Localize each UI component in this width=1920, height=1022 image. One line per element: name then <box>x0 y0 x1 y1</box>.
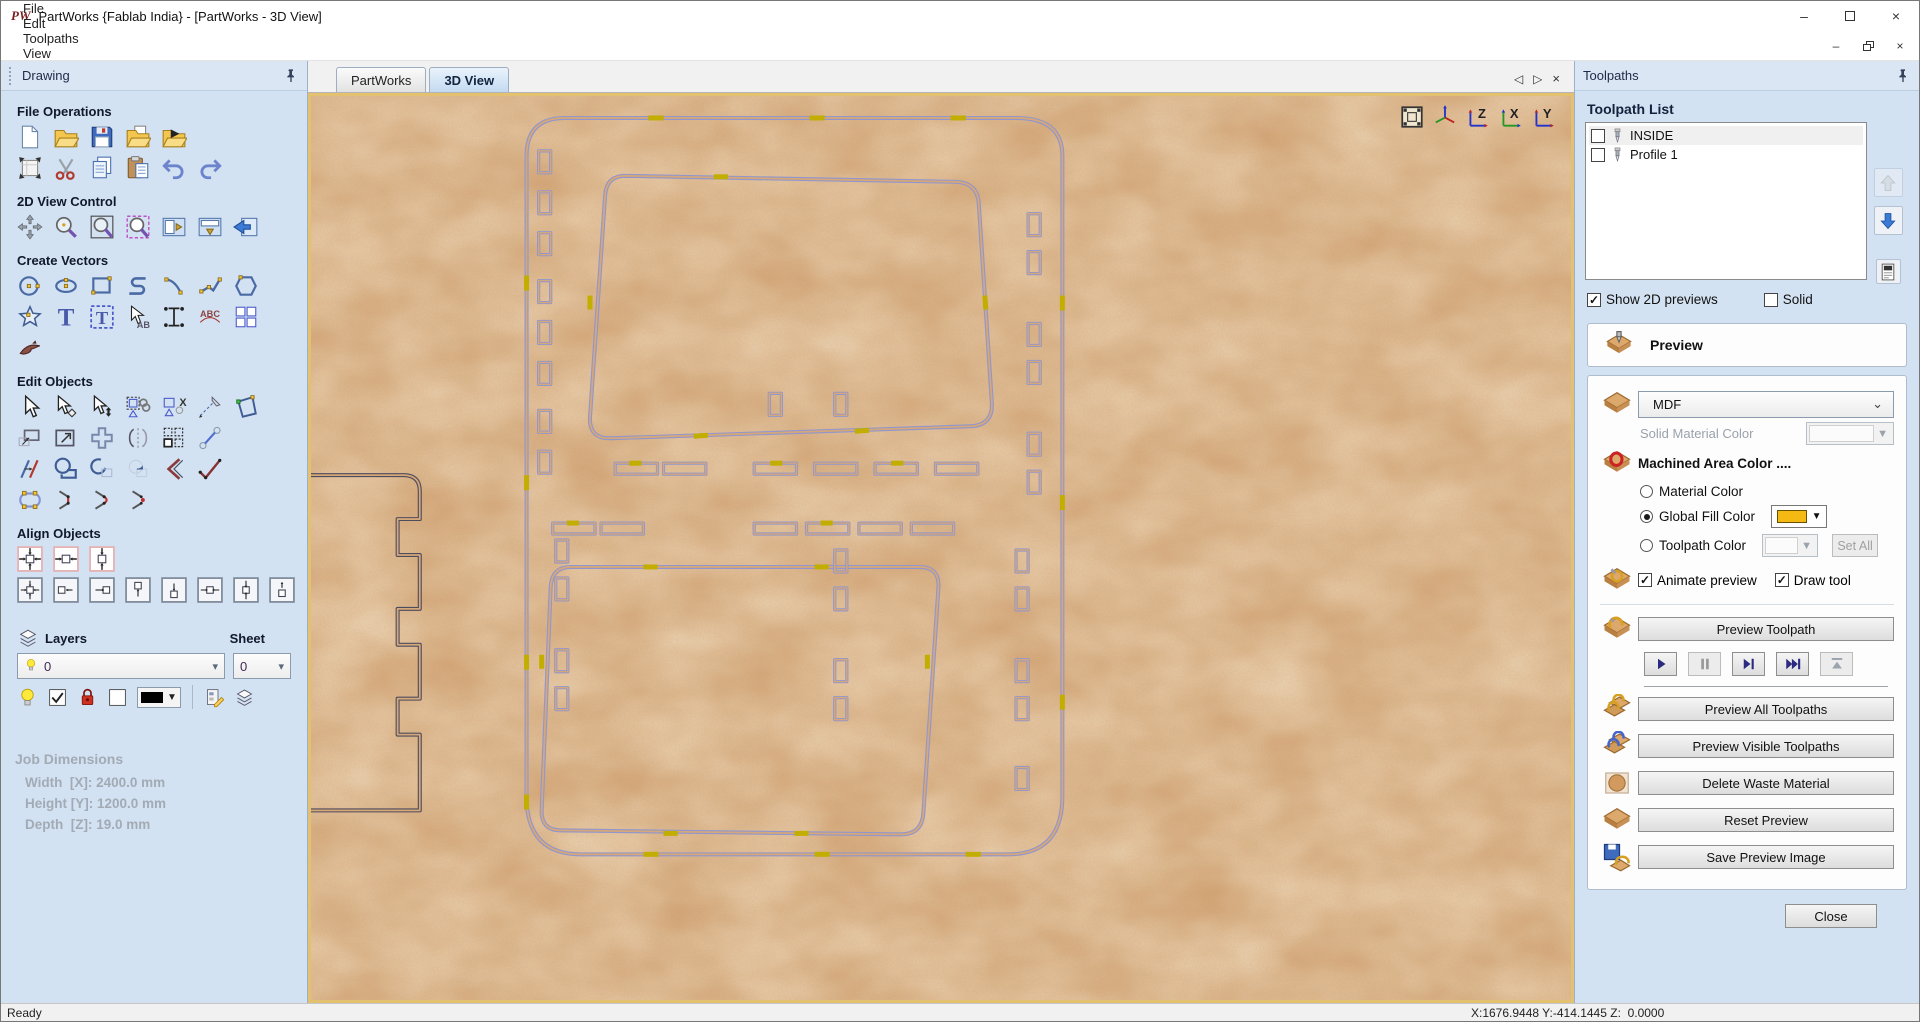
af-left-icon[interactable] <box>53 577 79 603</box>
svg-text:T: T <box>96 308 108 328</box>
layer-lock-icon[interactable] <box>77 687 98 708</box>
open-file-icon[interactable] <box>53 124 79 150</box>
layers-label: Layers <box>45 631 87 646</box>
ungroup-icon[interactable]: X <box>161 394 187 420</box>
radio-label: Material Color <box>1659 484 1743 499</box>
layer-select[interactable]: 0▾ <box>17 653 225 679</box>
machined-area-color-title: Machined Area Color .... <box>1638 456 1791 471</box>
solid-material-color-label: Solid Material Color <box>1640 426 1753 441</box>
fast-forward-button[interactable] <box>1776 652 1809 676</box>
section-title: Align Objects <box>17 526 307 541</box>
text-spacing-icon[interactable] <box>161 304 187 330</box>
preview-settings-group: MDF⌄ Solid Material Color ▼ Machined Are… <box>1587 375 1907 890</box>
toolpath-checkbox[interactable] <box>1591 129 1605 143</box>
view-orientation-toolbar: Z X Y <box>1399 104 1557 130</box>
node-edit-icon[interactable] <box>53 394 79 420</box>
section-title: Create Vectors <box>17 253 307 268</box>
join-dot-icon[interactable] <box>125 487 151 513</box>
toolpath-checkbox[interactable] <box>1591 148 1605 162</box>
global-fill-color-swatch <box>1777 510 1807 523</box>
star-icon[interactable] <box>17 304 43 330</box>
zoom-box-icon[interactable] <box>89 214 115 240</box>
layer-color-dropdown[interactable]: ▼ <box>137 687 181 708</box>
isometric-view-icon[interactable] <box>1432 104 1458 130</box>
job-dimensions: Job Dimensions Width [X]: 2400.0 mmHeigh… <box>15 751 307 832</box>
wood-two-icon <box>1600 694 1634 724</box>
radio-toolpath-color[interactable] <box>1640 539 1653 552</box>
toolpath-list-title: Toolpath List <box>1587 101 1909 117</box>
job-dimensions-title: Job Dimensions <box>15 751 307 767</box>
af-bottom-icon[interactable] <box>161 577 187 603</box>
tab-scroll-right-icon[interactable]: ▷ <box>1533 72 1542 86</box>
y-view-icon[interactable]: Y <box>1531 104 1557 130</box>
rectangle-icon[interactable] <box>89 273 115 299</box>
job-dimension-line: Height [Y]: 1200.0 mm <box>25 796 307 811</box>
status-bar: Ready X:1676.9448 Y:-414.1445 Z: 0.0000 <box>1 1003 1919 1021</box>
show-2d-previews-label: Show 2D previews <box>1606 292 1718 307</box>
keep-overlap-icon[interactable] <box>125 456 151 482</box>
toolpath-color-dropdown: ▼ <box>1762 534 1818 557</box>
preview-visible-toolpaths-button[interactable]: Preview Visible Toolpaths <box>1638 734 1894 758</box>
new-file-icon[interactable] <box>17 124 43 150</box>
play-button[interactable] <box>1644 652 1677 676</box>
section-title: Edit Objects <box>17 374 307 389</box>
undo-icon[interactable] <box>161 155 187 181</box>
export-file-icon[interactable] <box>161 124 187 150</box>
svg-text:AB: AB <box>137 320 151 330</box>
wood-plain-icon <box>1600 805 1634 835</box>
animate-preview-label: Animate preview <box>1657 573 1757 588</box>
job-dimension-line: Depth [Z]: 19.0 mm <box>25 817 307 832</box>
drawing-panel-header: Drawing <box>1 61 307 91</box>
text-on-curve-icon[interactable]: ABC <box>197 304 223 330</box>
toolpath-summary-button[interactable] <box>1876 259 1901 284</box>
edit-layers-icon[interactable] <box>204 687 225 708</box>
mdi-restore-button[interactable] <box>1857 37 1879 55</box>
layer-stack-icon[interactable] <box>234 687 255 708</box>
select-text-icon[interactable]: AB <box>125 304 151 330</box>
join-move-icon[interactable] <box>53 487 79 513</box>
align-cross-icon[interactable] <box>89 425 115 451</box>
section-title: 2D View Control <box>17 194 307 209</box>
solid-material-color-dropdown: ▼ <box>1806 422 1894 445</box>
radio-global-fill-color[interactable] <box>1640 510 1653 523</box>
paste-icon[interactable] <box>125 155 151 181</box>
machined-area-icon <box>1600 448 1634 478</box>
toolpaths-panel-header: Toolpaths <box>1575 61 1919 91</box>
job-dimension-line: Width [X]: 2400.0 mm <box>25 775 307 790</box>
mdi-minimize-button[interactable]: – <box>1825 37 1847 55</box>
x-view-icon[interactable]: X <box>1498 104 1524 130</box>
layer-empty-checkbox[interactable] <box>107 687 128 708</box>
minimize-button[interactable]: – <box>1781 1 1827 31</box>
subtract-icon[interactable] <box>89 456 115 482</box>
join-close-icon[interactable] <box>17 487 43 513</box>
toolpath-name: Profile 1 <box>1630 147 1678 162</box>
layer-visibility-icon[interactable] <box>17 687 38 708</box>
tab-close-icon[interactable]: × <box>1552 71 1560 86</box>
toolpaths-panel: Toolpaths Toolpath List INSIDE Profile 1 <box>1574 61 1919 1003</box>
status-text: Ready <box>7 1006 42 1020</box>
panel-grip[interactable] <box>9 67 14 85</box>
material-select[interactable]: MDF⌄ <box>1638 391 1894 418</box>
preview-toolpath-icon <box>1600 614 1634 644</box>
3d-view-canvas[interactable]: Z X Y <box>308 93 1574 1003</box>
drawing-panel: Drawing File Operations2D View ControlCr… <box>1 61 308 1003</box>
job-setup-icon[interactable] <box>17 155 43 181</box>
tab-partworks[interactable]: PartWorks <box>336 67 426 92</box>
transform-icon[interactable] <box>89 394 115 420</box>
zoom-selected-icon[interactable] <box>125 214 151 240</box>
group-icon[interactable] <box>125 394 151 420</box>
menu-edit[interactable]: Edit <box>11 16 91 31</box>
arc-icon[interactable] <box>161 273 187 299</box>
ac-h-icon[interactable] <box>53 546 79 572</box>
menu-toolpaths[interactable]: Toolpaths <box>11 31 91 46</box>
draw-tool-checkbox[interactable]: ✓ <box>1775 573 1789 587</box>
preview-toolpath-button[interactable]: Preview Toolpath <box>1638 617 1894 641</box>
zoom-icon[interactable] <box>53 214 79 240</box>
af-v-icon[interactable] <box>233 577 259 603</box>
layer-active-checkbox[interactable] <box>47 687 68 708</box>
toolpath-name: INSIDE <box>1630 128 1673 143</box>
polyline-icon[interactable] <box>125 273 151 299</box>
weld-icon[interactable] <box>53 456 79 482</box>
toggle-2d3d-b-icon[interactable] <box>197 214 223 240</box>
tab-scroll-left-icon[interactable]: ◁ <box>1514 72 1523 86</box>
svg-text:T: T <box>58 305 75 330</box>
ellipse-icon[interactable] <box>53 273 79 299</box>
sheet-select[interactable]: 0▾ <box>233 653 291 679</box>
menu-file[interactable]: File <box>11 1 91 16</box>
mirror-icon[interactable] <box>125 425 151 451</box>
preview-all-toolpaths-button[interactable]: Preview All Toolpaths <box>1638 697 1894 721</box>
paste-array-icon[interactable] <box>233 304 259 330</box>
wood-two-blue-icon <box>1600 731 1634 761</box>
chamfer-icon[interactable] <box>161 456 187 482</box>
skip-to-end-button[interactable] <box>1820 652 1853 676</box>
draw-tool-label: Draw tool <box>1794 573 1851 588</box>
svg-text:X: X <box>1510 106 1519 121</box>
af-stack-icon[interactable] <box>269 577 295 603</box>
zoom-extents-icon[interactable] <box>1399 104 1425 130</box>
svg-text:ABC: ABC <box>200 309 220 319</box>
move-toolpath-up-button[interactable] <box>1874 168 1903 197</box>
move-toolpath-down-button[interactable] <box>1874 206 1903 235</box>
preview-title: Preview <box>1650 337 1703 353</box>
save-preview-image-button[interactable]: Save Preview Image <box>1638 845 1894 869</box>
svg-text:Y: Y <box>1543 106 1552 121</box>
tab-3d-view[interactable]: 3D View <box>429 67 509 92</box>
mdi-close-button[interactable]: × <box>1889 37 1911 55</box>
curve-icon[interactable] <box>197 273 223 299</box>
redo-icon[interactable] <box>197 155 223 181</box>
switch-window-icon[interactable] <box>233 214 259 240</box>
ac-v-icon[interactable] <box>89 546 115 572</box>
af-h-icon[interactable] <box>197 577 223 603</box>
polygon-icon[interactable] <box>233 273 259 299</box>
trim-icon[interactable] <box>17 456 43 482</box>
pin-icon[interactable] <box>1895 68 1911 84</box>
menu-bar: FileEditToolpathsViewGadgetsHelp – × <box>1 31 1919 61</box>
animate-preview-checkbox[interactable]: ✓ <box>1638 573 1652 587</box>
wood-waste-icon <box>1600 768 1634 798</box>
radio-material-color[interactable] <box>1640 485 1653 498</box>
pause-button[interactable] <box>1688 652 1721 676</box>
step-button[interactable] <box>1732 652 1765 676</box>
fillet-icon[interactable] <box>197 425 223 451</box>
fit-curve-icon[interactable] <box>197 456 223 482</box>
restore-icon <box>1863 41 1874 51</box>
cursor-coordinates: X:1676.9448 Y:-414.1445 Z: 0.0000 <box>1471 1006 1664 1020</box>
array-copy-icon[interactable] <box>161 425 187 451</box>
title-bar: PW PartWorks {Fablab India} - [PartWorks… <box>1 1 1919 31</box>
solid-label: Solid <box>1783 292 1813 307</box>
pin-icon[interactable] <box>283 68 299 84</box>
preview-section-header: Preview <box>1587 323 1907 367</box>
preview-material-icon <box>1604 331 1634 359</box>
toolpaths-panel-title: Toolpaths <box>1583 68 1639 83</box>
circle-icon[interactable] <box>17 273 43 299</box>
show-2d-previews-checkbox[interactable]: ✓ <box>1587 293 1601 307</box>
af-top-icon[interactable] <box>125 577 151 603</box>
toolpath-list-item[interactable]: Profile 1 <box>1589 145 1863 164</box>
set-size-icon[interactable] <box>53 425 79 451</box>
set-all-button[interactable]: Set All <box>1832 534 1878 557</box>
app-window: PW PartWorks {Fablab India} - [PartWorks… <box>0 0 1920 1022</box>
ac-both-icon[interactable] <box>17 546 43 572</box>
section-title: File Operations <box>17 104 307 119</box>
vector-texture-icon[interactable] <box>17 335 43 361</box>
distort-icon[interactable] <box>233 394 259 420</box>
copy-icon[interactable] <box>89 155 115 181</box>
menu-view[interactable]: View <box>11 46 91 61</box>
wood-save-icon <box>1600 842 1634 872</box>
global-fill-color-dropdown[interactable]: ▼ <box>1771 505 1827 528</box>
maximize-button[interactable] <box>1827 1 1873 31</box>
radio-label: Toolpath Color <box>1659 538 1746 553</box>
af-right-icon[interactable] <box>89 577 115 603</box>
svg-text:Z: Z <box>1478 106 1486 121</box>
sheet-label: Sheet <box>230 631 265 646</box>
tab-navigation: ◁ ▷ × <box>1514 71 1566 92</box>
toolpath-list-item[interactable]: INSIDE <box>1589 126 1863 145</box>
join-curve-icon[interactable] <box>89 487 115 513</box>
drawing-panel-title: Drawing <box>22 68 70 83</box>
text-box-icon[interactable]: T <box>89 304 115 330</box>
toolpath-list[interactable]: INSIDE Profile 1 <box>1585 122 1867 280</box>
text-icon[interactable]: T <box>53 304 79 330</box>
animate-preview-icon <box>1600 565 1634 595</box>
toolpath-tool-icon <box>1610 146 1625 163</box>
pan-icon[interactable] <box>17 214 43 240</box>
import-file-icon[interactable] <box>125 124 151 150</box>
maximize-icon <box>1845 11 1855 21</box>
delete-waste-material-button[interactable]: Delete Waste Material <box>1638 771 1894 795</box>
measure-icon[interactable] <box>197 394 223 420</box>
document-tabstrip: PartWorks3D View ◁ ▷ × <box>308 61 1574 93</box>
toolpath-tool-icon <box>1610 127 1625 144</box>
close-button-toolpaths[interactable]: Close <box>1785 904 1877 928</box>
radio-label: Global Fill Color <box>1659 509 1755 524</box>
preview-playback-controls <box>1644 652 1898 676</box>
layer-visible-icon <box>24 658 38 674</box>
reset-preview-button[interactable]: Reset Preview <box>1638 808 1894 832</box>
offset-icon[interactable] <box>17 425 43 451</box>
toggle-2d3d-a-icon[interactable] <box>161 214 187 240</box>
layers-icon <box>17 627 39 649</box>
select-icon[interactable] <box>17 394 43 420</box>
material-block-icon <box>1600 389 1634 419</box>
af-center-icon[interactable] <box>17 577 43 603</box>
solid-checkbox[interactable] <box>1764 293 1778 307</box>
mdi-window-buttons: – × <box>1825 37 1919 55</box>
cut-icon[interactable] <box>53 155 79 181</box>
save-file-icon[interactable] <box>89 124 115 150</box>
z-view-icon[interactable]: Z <box>1465 104 1491 130</box>
close-button[interactable]: × <box>1873 1 1919 31</box>
